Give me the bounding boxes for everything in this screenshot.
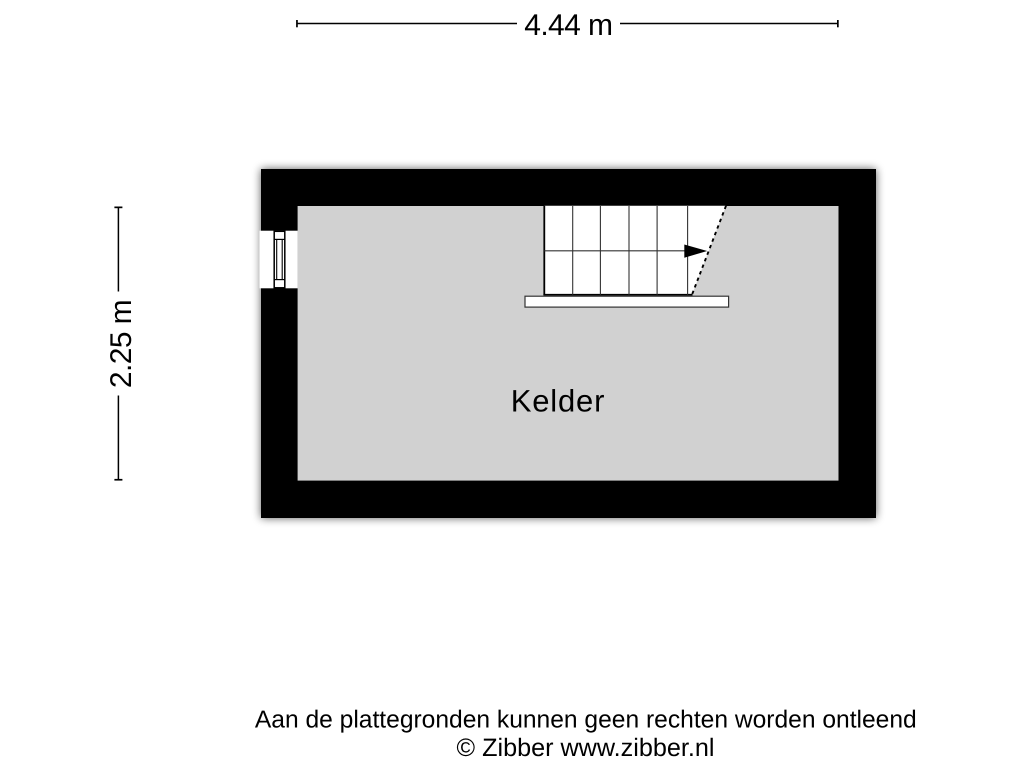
svg-text:Kelder: Kelder [511, 383, 605, 418]
svg-text:2.25 m: 2.25 m [105, 300, 138, 388]
svg-text:4.44 m: 4.44 m [524, 9, 612, 42]
svg-text:Aan de plattegronden kunnen ge: Aan de plattegronden kunnen geen rechten… [255, 706, 917, 733]
svg-text:© Zibber www.zibber.nl: © Zibber www.zibber.nl [457, 734, 715, 762]
